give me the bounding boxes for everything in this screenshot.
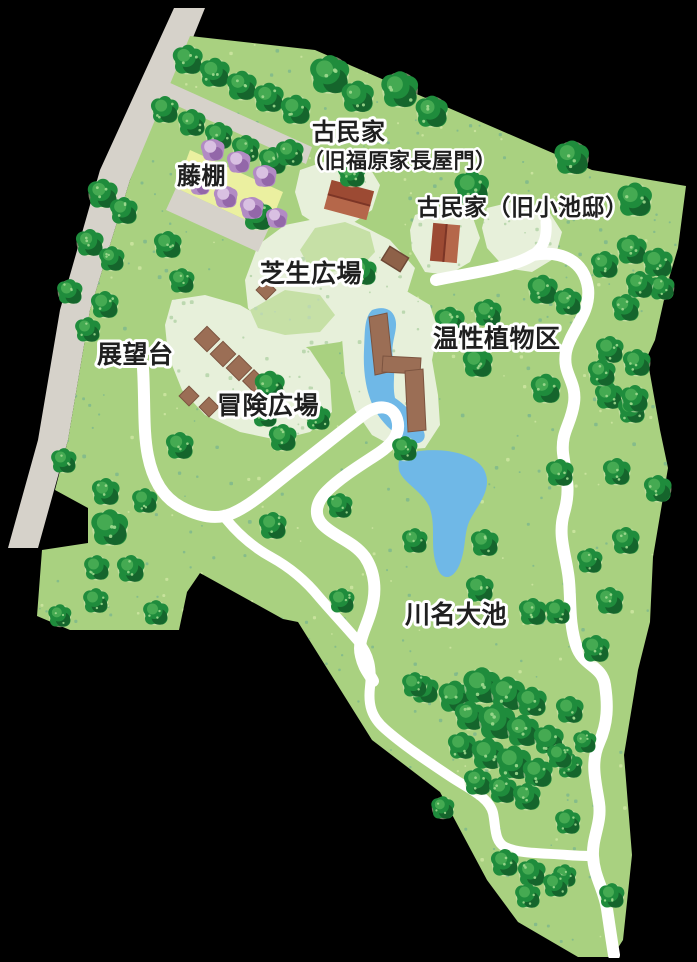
tree-symbol <box>556 696 584 723</box>
tree-symbol <box>259 512 287 539</box>
tree-symbol <box>200 58 230 88</box>
tree-symbol <box>466 575 494 602</box>
tree-symbol <box>612 527 640 554</box>
tree-symbol <box>76 229 104 256</box>
map-label-onsei: 温性植物区 <box>433 324 561 353</box>
tree-symbol <box>623 349 651 376</box>
tree-symbol <box>448 732 476 759</box>
map-label-tenbodai: 展望台 <box>97 340 174 369</box>
tree-symbol <box>591 251 619 278</box>
tree-symbol <box>643 248 673 278</box>
tree-symbol <box>554 140 589 174</box>
tree-symbol <box>588 359 616 386</box>
tree-symbol <box>577 548 602 573</box>
tree-symbol <box>327 493 352 518</box>
tree-symbol <box>117 555 145 582</box>
tree-symbol <box>547 743 572 768</box>
tree-symbol <box>507 715 539 747</box>
tree-symbol <box>151 96 179 123</box>
tree-symbol <box>554 288 582 315</box>
tree-symbol <box>464 768 492 795</box>
tree-symbol <box>92 478 120 505</box>
tree-symbol <box>281 95 311 125</box>
tree-symbol <box>599 883 624 908</box>
tree-symbol <box>471 529 499 556</box>
wisteria-bush-symbol <box>266 208 288 228</box>
tree-symbol <box>513 783 541 810</box>
tree-symbol <box>431 796 454 819</box>
tree-symbol <box>169 268 194 293</box>
tree-symbol <box>402 672 427 697</box>
tree-symbol <box>75 317 100 342</box>
tree-symbol <box>596 587 624 614</box>
tree-symbol <box>392 436 417 461</box>
tree-symbol <box>546 459 574 486</box>
tree-symbol <box>617 235 647 265</box>
tree-symbol <box>603 458 631 485</box>
tree-symbol <box>57 279 82 304</box>
tree-symbol <box>99 246 124 271</box>
tree-symbol <box>519 598 547 625</box>
map-label-kawana-oike: 川名大池 <box>405 600 507 629</box>
tree-symbol <box>51 448 76 473</box>
tree-symbol <box>573 730 596 753</box>
tree-symbol <box>555 809 580 834</box>
tree-symbol <box>518 859 546 886</box>
map-label-shibafu: 芝生広場 <box>260 259 362 288</box>
tree-symbol <box>269 424 297 451</box>
map-label-kominka-line2: （旧福原家長屋門） <box>303 149 497 173</box>
wisteria-bush-symbol <box>240 197 264 219</box>
map-label-kominka-line1: 古民家 <box>312 118 386 146</box>
wisteria-bush-symbol <box>227 151 251 173</box>
wisteria-bush-symbol <box>201 139 225 161</box>
tree-symbol <box>132 488 157 513</box>
tree-symbol <box>227 71 257 101</box>
map-label-boken: 冒険広場 <box>217 391 319 420</box>
tree-symbol <box>329 588 354 613</box>
tree-symbol <box>416 96 448 128</box>
tree-symbol <box>48 604 71 627</box>
tree-symbol <box>276 139 304 166</box>
tree-symbol <box>143 600 168 625</box>
tree-symbol <box>543 872 568 897</box>
tree-symbol <box>644 475 672 502</box>
tree-symbol <box>621 385 649 412</box>
tree-symbol <box>173 45 203 75</box>
tree-symbol <box>154 231 182 258</box>
tree-symbol <box>517 687 547 717</box>
tree-symbol <box>254 83 284 113</box>
park-map-image: 古民家（旧福原家長屋門）古民家（旧小池邸）藤棚芝生広場展望台冒険広場温性植物区川… <box>0 0 697 958</box>
tree-symbol <box>489 776 517 803</box>
tree-symbol <box>84 555 109 580</box>
tree-symbol <box>528 275 558 305</box>
tree-symbol <box>342 81 374 113</box>
tree-symbol <box>178 109 206 136</box>
tree-symbol <box>381 71 418 108</box>
wisteria-bush-symbol <box>253 165 277 187</box>
tree-symbol <box>612 294 640 321</box>
map-label-fujidana: 藤棚 <box>177 162 226 190</box>
tree-symbol <box>91 291 119 318</box>
tree-symbol <box>545 599 570 624</box>
building-symbol-koike-tei <box>430 223 460 263</box>
tree-symbol <box>491 849 519 876</box>
tree-symbol <box>531 374 561 404</box>
tree-symbol <box>83 588 108 613</box>
tree-symbol <box>582 635 610 662</box>
tree-symbol <box>166 432 194 459</box>
tree-symbol <box>474 299 502 326</box>
tree-symbol <box>91 509 128 546</box>
tree-symbol <box>402 528 427 553</box>
tree-symbol <box>626 271 654 298</box>
tree-symbol <box>110 197 138 224</box>
boardwalk <box>405 369 426 432</box>
park-map-svg: 古民家（旧福原家長屋門）古民家（旧小池邸）藤棚芝生広場展望台冒険広場温性植物区川… <box>0 0 697 958</box>
map-label-kominka-koike: 古民家（旧小池邸） <box>417 194 629 221</box>
tree-symbol <box>515 883 540 908</box>
